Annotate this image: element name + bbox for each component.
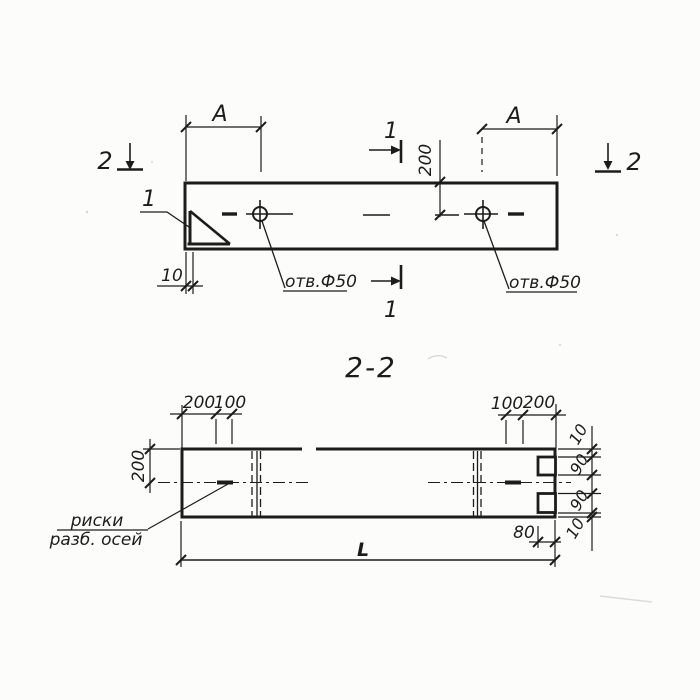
dim-axis-offset-label: 200 [416,144,436,176]
dim-a-right-label: А [504,104,521,129]
dim-a-right: А [477,104,562,176]
dim-axis-offset: 200 [416,140,445,220]
section-cut-1-bottom: 1 [371,265,401,323]
joint-lines-right [474,451,482,516]
hole-label-left: отв.Ф50 [262,221,357,292]
dim-gusset-thickness: 10 [157,252,203,294]
cut-2-label-right: 2 [626,148,641,176]
gusset-callout-label: 1 [142,187,156,212]
axis-marks-leader [148,484,228,529]
drawing-canvas: 1 А А [0,0,700,700]
dim-tl-100: 100 [214,393,246,413]
dim-re-10-top: 10 [565,421,592,448]
section-view: 200 100 100 200 200 [49,393,601,567]
hole-label-right-text: отв.Ф50 [509,273,581,293]
plan-beam-outline [185,183,557,249]
dim-tl-200: 200 [183,393,215,413]
gusset-leader-line [140,212,189,227]
axis-marks-line1: риски [70,511,124,531]
notch-top [538,457,556,475]
axis-marks-line2: разб. осей [49,530,143,550]
dim-a-left-label: А [210,102,227,127]
corner-gusset [188,211,231,244]
dim-height-label: 200 [129,450,149,482]
dims-top-right: 100 200 [491,393,566,448]
section-cut-2-right: 2 [595,143,642,176]
cut-2-label-left: 2 [97,147,112,175]
cut-1-label-bottom: 1 [384,298,398,323]
dim-re-90-top: 90 [566,451,593,478]
plan-view: 1 А А [97,102,641,323]
dim-length-label: L [357,539,369,561]
section-cut-2-left: 2 [97,143,143,175]
hole-label-right: отв.Ф50 [484,221,581,293]
dim-height-left: 200 [129,439,180,493]
hole-label-left-text: отв.Ф50 [285,272,357,292]
cut-1-label-top: 1 [384,119,398,144]
dim-80-label: 80 [513,523,535,543]
dims-top-left: 200 100 [170,393,246,448]
notch-bottom [538,494,556,513]
joint-lines-left [252,451,261,516]
dim-re-90-bottom: 90 [566,487,593,514]
section-view-title: 2-2 [345,351,397,384]
dims-right-edge: 10 90 90 10 [558,421,601,551]
dim-a-left: А [181,102,266,181]
dim-tr-200: 200 [523,393,555,413]
section-cut-1-top: 1 [369,119,401,163]
dim-tr-100: 100 [491,394,523,414]
dim-length: L [176,521,560,567]
dim-re-10-bottom: 10 [562,515,589,542]
dim-gusset-thickness-label: 10 [161,266,183,286]
